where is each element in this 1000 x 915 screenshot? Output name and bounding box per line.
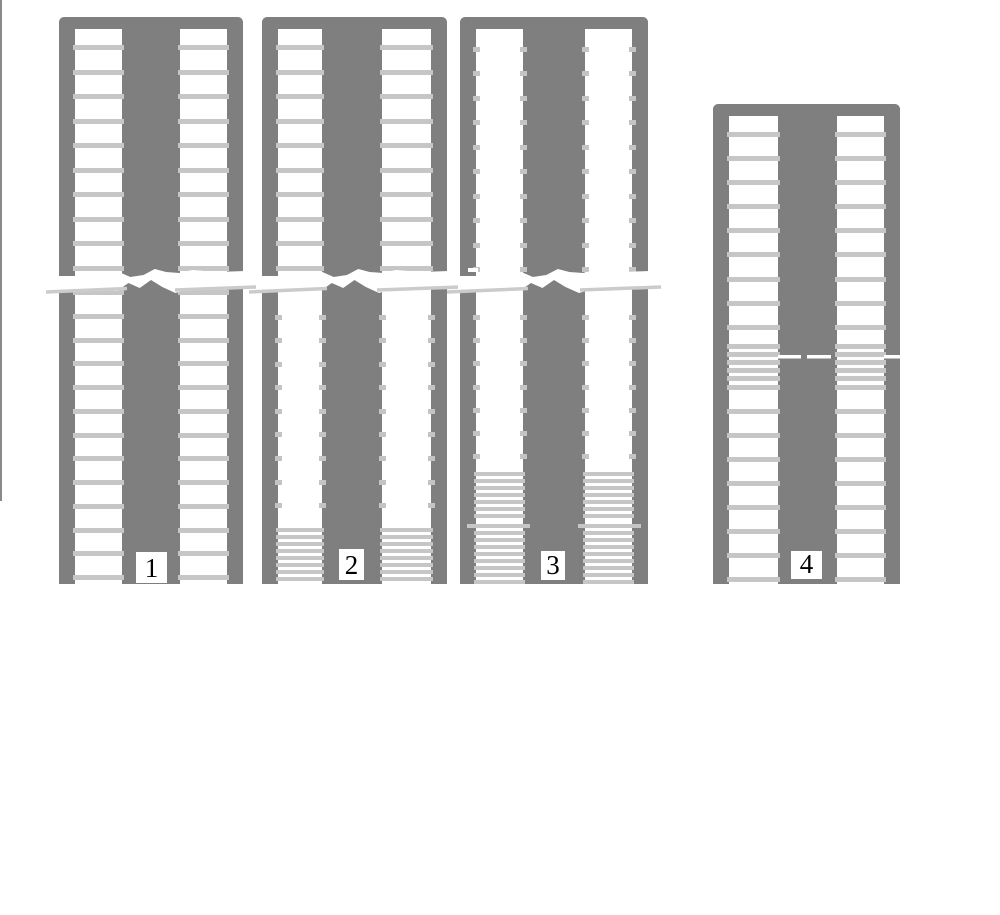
rung-stub bbox=[582, 194, 589, 199]
rung bbox=[73, 266, 124, 271]
rung bbox=[380, 168, 433, 173]
rung bbox=[276, 45, 324, 50]
rung-stub bbox=[582, 218, 589, 223]
rung bbox=[178, 409, 229, 414]
rung bbox=[178, 385, 229, 390]
dense-rung bbox=[583, 514, 634, 518]
rung bbox=[276, 241, 324, 246]
rung-stub bbox=[275, 432, 282, 437]
rung bbox=[73, 504, 124, 509]
dense-rung bbox=[474, 531, 525, 535]
rail-nick bbox=[468, 268, 478, 272]
rung bbox=[73, 361, 124, 366]
rung-stub bbox=[629, 218, 636, 223]
rung bbox=[73, 575, 124, 580]
rung bbox=[73, 433, 124, 438]
rung-stub bbox=[379, 385, 386, 390]
rung bbox=[178, 143, 229, 148]
rung-stub bbox=[319, 315, 326, 320]
rung bbox=[835, 553, 886, 558]
rung bbox=[178, 456, 229, 461]
left-rail bbox=[59, 21, 75, 584]
rung-stub bbox=[428, 385, 435, 390]
dense-rung bbox=[474, 552, 525, 556]
rung-stub bbox=[629, 71, 636, 76]
rung bbox=[73, 314, 124, 319]
rung-stub bbox=[629, 315, 636, 320]
rung bbox=[178, 241, 229, 246]
rung-stub bbox=[473, 243, 480, 248]
dense-rung bbox=[583, 552, 634, 556]
rung-stub bbox=[473, 120, 480, 125]
figure-label-text: 2 bbox=[345, 550, 359, 580]
dense-rung bbox=[276, 563, 324, 567]
rung-stub bbox=[428, 315, 435, 320]
rung-stub bbox=[582, 96, 589, 101]
rung-stub bbox=[275, 362, 282, 367]
rung-stub bbox=[520, 218, 527, 223]
rung-stub bbox=[473, 194, 480, 199]
rung-stub bbox=[629, 96, 636, 101]
rung bbox=[727, 409, 780, 414]
rung bbox=[73, 45, 124, 50]
page-edge-line bbox=[0, 0, 2, 501]
rung bbox=[835, 376, 886, 381]
rung-stub bbox=[582, 243, 589, 248]
rung-stub bbox=[473, 431, 480, 436]
rung bbox=[178, 480, 229, 485]
rung bbox=[835, 368, 886, 373]
rung-stub bbox=[473, 145, 480, 150]
right-rail bbox=[431, 21, 447, 584]
rung-stub bbox=[319, 338, 326, 343]
rung-stub bbox=[473, 71, 480, 76]
rung-stub bbox=[629, 338, 636, 343]
rung bbox=[380, 143, 433, 148]
ladder-figure-1: 1 bbox=[46, 17, 256, 584]
right-rail bbox=[884, 108, 900, 584]
dense-rung bbox=[583, 507, 634, 511]
rung-stub bbox=[520, 145, 527, 150]
rung bbox=[835, 277, 886, 282]
rung-stub bbox=[582, 408, 589, 413]
rung bbox=[73, 119, 124, 124]
rung-stub bbox=[582, 338, 589, 343]
rung bbox=[73, 94, 124, 99]
rung bbox=[73, 192, 124, 197]
rung-stub bbox=[582, 315, 589, 320]
rung bbox=[178, 119, 229, 124]
rung bbox=[178, 94, 229, 99]
dense-rung bbox=[583, 486, 634, 490]
rung bbox=[380, 192, 433, 197]
figure-label-text: 4 bbox=[800, 549, 814, 579]
rung-stub bbox=[629, 145, 636, 150]
rung-stub bbox=[473, 338, 480, 343]
rung bbox=[835, 505, 886, 510]
offset-rung bbox=[467, 524, 530, 528]
rung-stub bbox=[319, 480, 326, 485]
rung-stub bbox=[629, 431, 636, 436]
rung bbox=[276, 192, 324, 197]
rung bbox=[380, 45, 433, 50]
rung bbox=[835, 409, 886, 414]
rung bbox=[835, 352, 886, 357]
rung-stub bbox=[428, 338, 435, 343]
rung bbox=[727, 252, 780, 257]
rung-stub bbox=[379, 338, 386, 343]
left-rail bbox=[713, 108, 729, 584]
right-rail bbox=[227, 21, 243, 584]
rung-stub bbox=[520, 385, 527, 390]
rung bbox=[835, 529, 886, 534]
rung bbox=[73, 217, 124, 222]
rung-stub bbox=[473, 218, 480, 223]
rung-stub bbox=[319, 432, 326, 437]
rung bbox=[727, 228, 780, 233]
rung bbox=[835, 180, 886, 185]
dense-rung bbox=[583, 493, 634, 497]
rung bbox=[73, 409, 124, 414]
left-rail bbox=[460, 21, 476, 584]
rung bbox=[727, 180, 780, 185]
rung bbox=[835, 360, 886, 365]
rung bbox=[835, 252, 886, 257]
rung-stub bbox=[520, 96, 527, 101]
rung-stub bbox=[582, 431, 589, 436]
rung-stub bbox=[629, 454, 636, 459]
rung-stub bbox=[379, 315, 386, 320]
rung bbox=[727, 344, 780, 349]
rung bbox=[380, 94, 433, 99]
rung bbox=[727, 368, 780, 373]
rung-stub bbox=[275, 409, 282, 414]
rung-stub bbox=[520, 194, 527, 199]
dense-rung bbox=[583, 545, 634, 549]
rung bbox=[727, 385, 780, 390]
rung-stub bbox=[379, 456, 386, 461]
figure-label-text: 3 bbox=[546, 550, 560, 580]
rung bbox=[835, 132, 886, 137]
rung-stub bbox=[582, 47, 589, 52]
rung-stub bbox=[473, 385, 480, 390]
rung-stub bbox=[520, 243, 527, 248]
rung-stub bbox=[473, 315, 480, 320]
dense-rung bbox=[380, 570, 433, 574]
ladder-figure-2: 2 bbox=[249, 17, 460, 584]
rung-stub bbox=[428, 456, 435, 461]
rung-stub bbox=[520, 47, 527, 52]
rung-stub bbox=[629, 47, 636, 52]
rung bbox=[73, 338, 124, 343]
rung bbox=[835, 325, 886, 330]
rung bbox=[727, 301, 780, 306]
rung bbox=[178, 45, 229, 50]
rung bbox=[178, 192, 229, 197]
dash-break bbox=[778, 355, 801, 359]
rung bbox=[835, 481, 886, 486]
rung-stub bbox=[473, 47, 480, 52]
dense-rung bbox=[276, 577, 324, 581]
rung bbox=[276, 168, 324, 173]
rung-stub bbox=[520, 338, 527, 343]
rung-stub bbox=[319, 409, 326, 414]
dense-rung bbox=[474, 472, 525, 476]
dense-rung bbox=[474, 486, 525, 490]
rung bbox=[727, 325, 780, 330]
center-column bbox=[778, 108, 837, 584]
dash-break bbox=[884, 355, 903, 359]
rung-stub bbox=[275, 456, 282, 461]
rung-stub bbox=[629, 120, 636, 125]
rung bbox=[727, 481, 780, 486]
rung-stub bbox=[275, 385, 282, 390]
rung-stub bbox=[520, 267, 527, 272]
rung-stub bbox=[473, 361, 480, 366]
rung-stub bbox=[520, 120, 527, 125]
offset-rung bbox=[578, 524, 641, 528]
dense-rung bbox=[276, 542, 324, 546]
rung bbox=[276, 70, 324, 75]
rung bbox=[73, 385, 124, 390]
rung bbox=[380, 119, 433, 124]
rung bbox=[727, 132, 780, 137]
dense-rung bbox=[276, 535, 324, 539]
rung bbox=[178, 266, 229, 271]
rung bbox=[73, 168, 124, 173]
rung bbox=[178, 575, 229, 580]
rung bbox=[727, 204, 780, 209]
dense-rung bbox=[583, 559, 634, 563]
rung bbox=[178, 528, 229, 533]
rung-stub bbox=[582, 385, 589, 390]
rung bbox=[835, 433, 886, 438]
rung bbox=[73, 480, 124, 485]
rung-stub bbox=[379, 362, 386, 367]
dense-rung bbox=[474, 500, 525, 504]
dense-rung bbox=[583, 531, 634, 535]
rung bbox=[727, 577, 780, 582]
dense-rung bbox=[380, 549, 433, 553]
rung bbox=[178, 168, 229, 173]
rung bbox=[178, 70, 229, 75]
rung-stub bbox=[582, 120, 589, 125]
rung bbox=[727, 277, 780, 282]
dense-rung bbox=[380, 542, 433, 546]
rung bbox=[727, 457, 780, 462]
dense-rung bbox=[380, 556, 433, 560]
dense-rung bbox=[474, 545, 525, 549]
rung bbox=[380, 70, 433, 75]
rung-stub bbox=[520, 71, 527, 76]
dense-rung bbox=[276, 556, 324, 560]
rung bbox=[276, 119, 324, 124]
rung bbox=[73, 143, 124, 148]
dense-rung bbox=[474, 507, 525, 511]
dense-rung bbox=[380, 535, 433, 539]
rung bbox=[276, 266, 324, 271]
rung bbox=[727, 529, 780, 534]
dense-rung bbox=[583, 573, 634, 577]
rung-stub bbox=[379, 503, 386, 508]
rung-stub bbox=[379, 432, 386, 437]
rung-stub bbox=[319, 362, 326, 367]
rung-stub bbox=[428, 480, 435, 485]
rung bbox=[380, 266, 433, 271]
ladder-figure-4: 4 bbox=[713, 104, 903, 584]
rung bbox=[835, 577, 886, 582]
rung bbox=[276, 143, 324, 148]
dense-rung bbox=[474, 514, 525, 518]
rung bbox=[835, 344, 886, 349]
rung bbox=[727, 352, 780, 357]
rung-stub bbox=[520, 408, 527, 413]
rung-stub bbox=[275, 503, 282, 508]
center-column bbox=[322, 21, 382, 584]
dense-rung bbox=[583, 580, 634, 584]
dense-rung bbox=[474, 580, 525, 584]
rung-stub bbox=[520, 169, 527, 174]
dense-rung bbox=[474, 559, 525, 563]
dense-rung bbox=[276, 528, 324, 532]
dense-rung bbox=[474, 479, 525, 483]
rung-stub bbox=[582, 454, 589, 459]
dense-rung bbox=[380, 577, 433, 581]
left-rail bbox=[262, 21, 278, 584]
dense-rung bbox=[583, 500, 634, 504]
rung-stub bbox=[629, 385, 636, 390]
diagram-canvas: 1234 bbox=[0, 0, 1000, 915]
center-column bbox=[523, 21, 585, 584]
rung-stub bbox=[428, 409, 435, 414]
center-column bbox=[122, 21, 180, 584]
rung bbox=[727, 553, 780, 558]
rung bbox=[727, 376, 780, 381]
rung bbox=[835, 204, 886, 209]
rung-stub bbox=[428, 362, 435, 367]
ladder-figure-3: 3 bbox=[447, 17, 661, 584]
dense-rung bbox=[276, 549, 324, 553]
dense-rung bbox=[583, 472, 634, 476]
rung bbox=[73, 528, 124, 533]
rung bbox=[178, 338, 229, 343]
rung bbox=[276, 94, 324, 99]
rung bbox=[73, 456, 124, 461]
rung-stub bbox=[275, 480, 282, 485]
rung bbox=[73, 70, 124, 75]
rung-stub bbox=[520, 454, 527, 459]
rung bbox=[73, 551, 124, 556]
rung bbox=[178, 433, 229, 438]
right-rail bbox=[632, 21, 648, 584]
dense-rung bbox=[474, 566, 525, 570]
rung-stub bbox=[629, 408, 636, 413]
rung-stub bbox=[582, 361, 589, 366]
rung-stub bbox=[428, 432, 435, 437]
rung-stub bbox=[582, 71, 589, 76]
dense-rung bbox=[583, 566, 634, 570]
rung-stub bbox=[520, 315, 527, 320]
rung bbox=[835, 228, 886, 233]
dash-break bbox=[807, 355, 831, 359]
rung bbox=[835, 156, 886, 161]
rung-stub bbox=[520, 361, 527, 366]
dense-rung bbox=[380, 563, 433, 567]
rung-stub bbox=[379, 409, 386, 414]
rung bbox=[73, 241, 124, 246]
ladder-diagram: 1234 bbox=[0, 0, 1000, 915]
rung bbox=[835, 457, 886, 462]
rung-stub bbox=[319, 456, 326, 461]
rung-stub bbox=[629, 194, 636, 199]
rung-stub bbox=[473, 169, 480, 174]
rung bbox=[178, 217, 229, 222]
rung-stub bbox=[629, 361, 636, 366]
rung bbox=[380, 217, 433, 222]
rung-stub bbox=[473, 96, 480, 101]
rung-stub bbox=[319, 385, 326, 390]
rung-stub bbox=[275, 315, 282, 320]
rung-stub bbox=[629, 243, 636, 248]
rung bbox=[178, 504, 229, 509]
rung-stub bbox=[275, 338, 282, 343]
rung bbox=[835, 301, 886, 306]
rung bbox=[727, 433, 780, 438]
rung-stub bbox=[473, 454, 480, 459]
rung-stub bbox=[629, 169, 636, 174]
rung-stub bbox=[473, 408, 480, 413]
rung bbox=[727, 156, 780, 161]
dense-rung bbox=[474, 493, 525, 497]
rung bbox=[835, 385, 886, 390]
rung-stub bbox=[379, 480, 386, 485]
rung-stub bbox=[428, 503, 435, 508]
rung bbox=[178, 314, 229, 319]
rung bbox=[727, 360, 780, 365]
rung bbox=[727, 505, 780, 510]
rung bbox=[276, 217, 324, 222]
dense-rung bbox=[583, 479, 634, 483]
figure-label-text: 1 bbox=[145, 553, 159, 583]
rung bbox=[178, 361, 229, 366]
rung-stub bbox=[629, 267, 636, 272]
rung-stub bbox=[520, 431, 527, 436]
dense-rung bbox=[474, 538, 525, 542]
rung bbox=[380, 241, 433, 246]
dense-rung bbox=[474, 573, 525, 577]
dense-rung bbox=[380, 528, 433, 532]
rung-stub bbox=[582, 145, 589, 150]
rung-stub bbox=[582, 169, 589, 174]
rung-stub bbox=[582, 267, 589, 272]
dense-rung bbox=[276, 570, 324, 574]
dense-rung bbox=[583, 538, 634, 542]
rung-stub bbox=[319, 503, 326, 508]
rung bbox=[178, 551, 229, 556]
